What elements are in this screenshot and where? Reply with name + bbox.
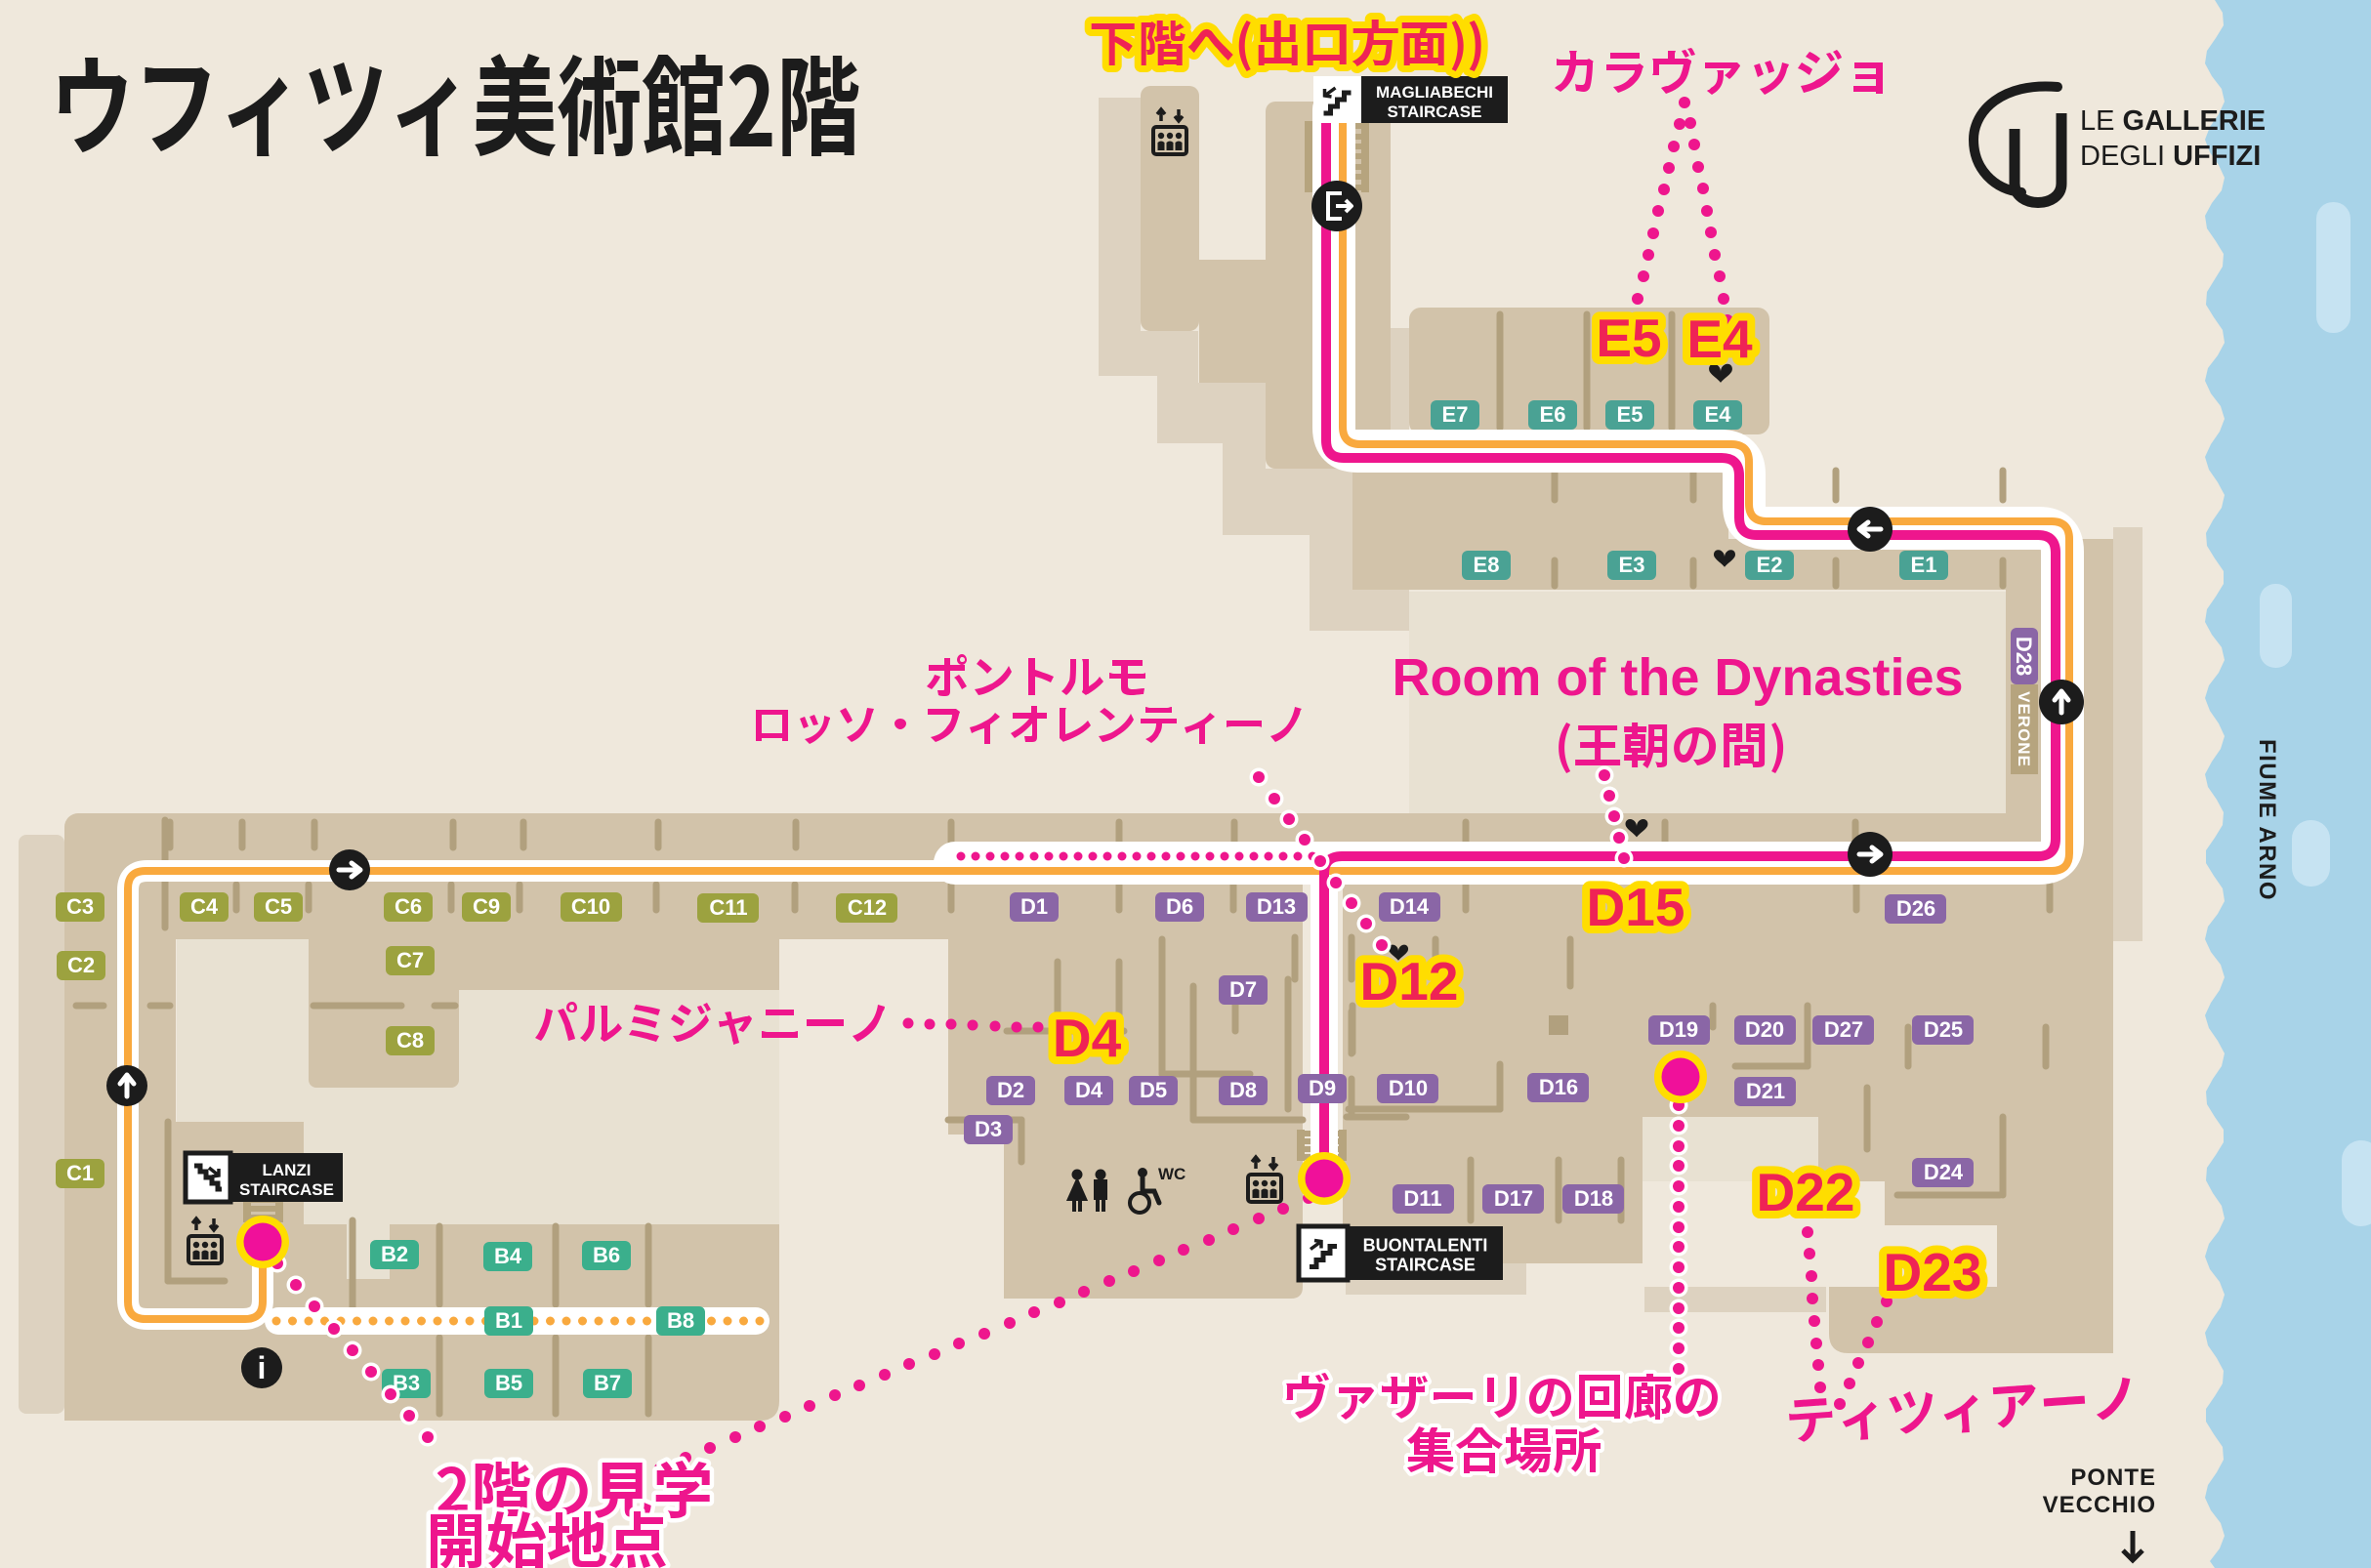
svg-text:D1: D1 bbox=[1020, 894, 1048, 919]
svg-text:D23: D23 bbox=[1884, 1242, 1982, 1302]
svg-text:E5: E5 bbox=[1596, 308, 1661, 368]
svg-text:D11: D11 bbox=[1403, 1186, 1441, 1211]
svg-text:BUONTALENTI: BUONTALENTI bbox=[1363, 1236, 1488, 1256]
svg-text:B1: B1 bbox=[495, 1308, 522, 1333]
svg-text:B4: B4 bbox=[494, 1244, 522, 1268]
svg-text:C6: C6 bbox=[395, 894, 422, 919]
svg-text:D20: D20 bbox=[1745, 1017, 1784, 1042]
svg-text:WC: WC bbox=[1158, 1165, 1185, 1183]
svg-text:D19: D19 bbox=[1659, 1017, 1698, 1042]
svg-text:D9: D9 bbox=[1309, 1076, 1336, 1100]
svg-text:D16: D16 bbox=[1539, 1075, 1578, 1099]
svg-text:B5: B5 bbox=[495, 1371, 522, 1395]
svg-text:D24: D24 bbox=[1924, 1160, 1964, 1184]
svg-text:STAIRCASE: STAIRCASE bbox=[239, 1180, 334, 1199]
svg-text:D21: D21 bbox=[1746, 1079, 1785, 1103]
svg-text:Room of the Dynasties: Room of the Dynasties bbox=[1392, 648, 1963, 707]
svg-text:D14: D14 bbox=[1390, 894, 1430, 919]
svg-text:C1: C1 bbox=[66, 1161, 94, 1185]
svg-text:D22: D22 bbox=[1757, 1162, 1855, 1222]
svg-text:D12: D12 bbox=[1360, 951, 1459, 1011]
svg-text:E1: E1 bbox=[1911, 553, 1937, 577]
svg-text:D8: D8 bbox=[1229, 1078, 1257, 1102]
svg-text:B8: B8 bbox=[667, 1308, 694, 1333]
svg-text:LE GALLERIE: LE GALLERIE bbox=[2080, 105, 2266, 137]
svg-text:STAIRCASE: STAIRCASE bbox=[1388, 103, 1482, 121]
svg-text:D15: D15 bbox=[1587, 877, 1685, 937]
svg-text:D17: D17 bbox=[1494, 1186, 1533, 1211]
svg-text:DEGLI UFFIZI: DEGLI UFFIZI bbox=[2080, 141, 2261, 172]
svg-text:D27: D27 bbox=[1824, 1017, 1863, 1042]
svg-text:D26: D26 bbox=[1896, 896, 1935, 921]
svg-text:D13: D13 bbox=[1257, 894, 1296, 919]
svg-text:STAIRCASE: STAIRCASE bbox=[1375, 1256, 1476, 1275]
svg-text:C4: C4 bbox=[190, 894, 219, 919]
svg-text:C7: C7 bbox=[396, 948, 424, 972]
svg-text:FIUME ARNO: FIUME ARNO bbox=[2254, 739, 2280, 901]
svg-text:E4: E4 bbox=[1686, 309, 1753, 369]
svg-text:D25: D25 bbox=[1924, 1017, 1963, 1042]
svg-text:D4: D4 bbox=[1053, 1008, 1122, 1068]
svg-text:D3: D3 bbox=[975, 1117, 1002, 1141]
svg-text:E5: E5 bbox=[1617, 402, 1643, 427]
svg-text:D10: D10 bbox=[1389, 1076, 1428, 1100]
svg-text:D28: D28 bbox=[2012, 637, 2036, 676]
svg-text:C11: C11 bbox=[709, 895, 747, 920]
svg-text:D18: D18 bbox=[1574, 1186, 1613, 1211]
svg-text:C9: C9 bbox=[473, 894, 500, 919]
svg-text:C3: C3 bbox=[66, 894, 94, 919]
svg-text:D7: D7 bbox=[1229, 977, 1257, 1002]
svg-text:D6: D6 bbox=[1166, 894, 1193, 919]
svg-text:C5: C5 bbox=[265, 894, 292, 919]
svg-text:B6: B6 bbox=[593, 1243, 620, 1267]
svg-text:D2: D2 bbox=[997, 1078, 1024, 1102]
svg-text:E6: E6 bbox=[1540, 402, 1566, 427]
svg-text:E7: E7 bbox=[1442, 402, 1469, 427]
svg-text:VERONE: VERONE bbox=[2015, 691, 2033, 767]
svg-text:D5: D5 bbox=[1140, 1078, 1167, 1102]
svg-text:i: i bbox=[258, 1350, 267, 1385]
svg-text:VECCHIO: VECCHIO bbox=[2043, 1492, 2156, 1518]
svg-text:C12: C12 bbox=[848, 895, 887, 920]
svg-text:E3: E3 bbox=[1619, 553, 1645, 577]
svg-text:B7: B7 bbox=[594, 1371, 621, 1395]
svg-text:PONTE: PONTE bbox=[2070, 1465, 2156, 1491]
svg-text:B2: B2 bbox=[381, 1242, 408, 1266]
svg-text:C8: C8 bbox=[396, 1028, 424, 1052]
svg-text:E8: E8 bbox=[1474, 553, 1500, 577]
svg-text:C10: C10 bbox=[571, 894, 610, 919]
svg-text:E2: E2 bbox=[1757, 553, 1783, 577]
svg-text:C2: C2 bbox=[67, 953, 95, 977]
svg-text:LANZI: LANZI bbox=[262, 1161, 311, 1179]
svg-text:E4: E4 bbox=[1705, 402, 1732, 427]
svg-text:MAGLIABECHI: MAGLIABECHI bbox=[1376, 83, 1493, 102]
svg-text:D4: D4 bbox=[1075, 1078, 1103, 1102]
